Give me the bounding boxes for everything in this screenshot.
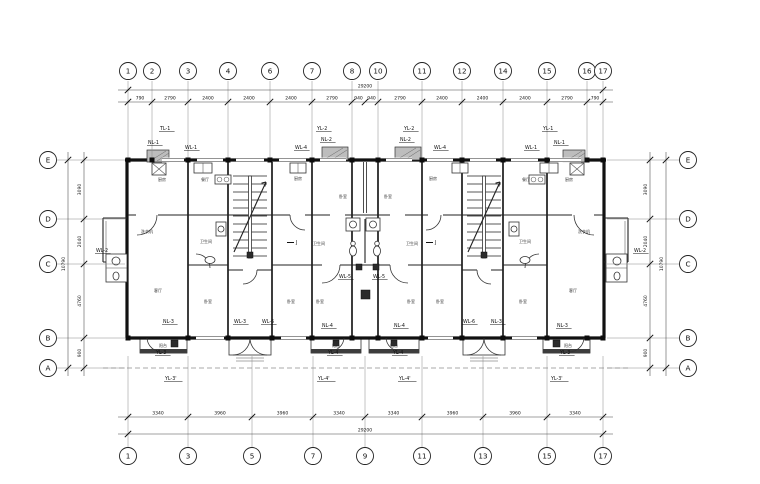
axis-bubble-label: 17: [598, 452, 607, 461]
dim-text: 10790: [61, 257, 67, 271]
riser-label-nl-4: NL-4: [394, 323, 405, 329]
column: [268, 158, 273, 163]
window: [236, 158, 264, 163]
porch-steps: [236, 358, 498, 361]
axis-bubble-label: 15: [542, 452, 551, 461]
column: [585, 158, 590, 163]
column: [501, 336, 506, 341]
axis-bubble-label: C: [685, 260, 690, 269]
axis-bubble-label: 3: [186, 67, 191, 76]
toilet-tank: [375, 241, 380, 246]
washbasin: [218, 226, 224, 232]
riser-label-yl-4: YL-4: [392, 350, 403, 356]
riser-label-wl-3: WL-3: [234, 319, 246, 325]
room-label: 阳台: [564, 342, 572, 348]
axis-bubble-label: 10: [373, 67, 383, 76]
dim-text: 3340: [569, 411, 581, 417]
axis-bubble-label: B: [686, 334, 691, 343]
column: [545, 158, 550, 163]
window: [386, 158, 412, 163]
section-mark: J: [295, 240, 297, 246]
room-label: 客厅: [154, 287, 162, 293]
toilet-tank: [351, 241, 356, 246]
axis-bubble-label: 2: [150, 67, 155, 76]
shaft-box: [361, 290, 370, 299]
window: [427, 158, 453, 163]
floor-plan-svg: 2920079027902400240024002790940940279024…: [0, 0, 760, 484]
room-label: 卧室: [339, 193, 347, 199]
toilet: [614, 272, 620, 280]
column: [150, 158, 155, 163]
dim-text: 3960: [509, 411, 521, 417]
dim-text: 900: [77, 349, 83, 358]
window: [512, 336, 537, 341]
axis-bubble-label: A: [46, 364, 51, 373]
riser-label-yl-4p: YL-4': [317, 376, 330, 382]
axis-bubble-label: 12: [457, 67, 466, 76]
axis-bubble-label: 4: [226, 67, 231, 76]
dim-text: 790: [136, 96, 145, 102]
toilet: [350, 246, 357, 256]
axis-bubble-label: 14: [498, 67, 508, 76]
axis-bubble-label: 8: [350, 67, 355, 76]
riser-label-wl-2: WL-2: [634, 248, 646, 254]
axis-bubble-label: 17: [598, 67, 607, 76]
washbasin: [511, 226, 517, 232]
dim-text: 4760: [643, 295, 649, 307]
dim-text: 2400: [243, 96, 255, 102]
window: [162, 158, 184, 163]
column: [376, 336, 381, 341]
dim-text: 2790: [561, 96, 573, 102]
dim-text: 3960: [214, 411, 226, 417]
stair-newel: [247, 252, 253, 258]
riser-label-yl-4: YL-4: [327, 350, 338, 356]
toilet: [205, 257, 215, 264]
column: [501, 158, 506, 163]
axis-bubble-label: 11: [417, 67, 426, 76]
riser-label-yl-2: YL-2: [316, 126, 327, 132]
riser-label-wl-1: WL-1: [185, 145, 197, 151]
dim-text: 940: [367, 96, 376, 102]
riser-label-yl-3: YL-3: [155, 350, 166, 356]
riser-label-yl-4p: YL-4': [398, 376, 411, 382]
column: [420, 158, 425, 163]
riser-label-nl-2: NL-2: [321, 137, 332, 143]
axis-bubble-label: 7: [310, 67, 315, 76]
window: [196, 336, 224, 341]
room-label: 厨房: [158, 176, 166, 182]
column: [310, 336, 315, 341]
riser-wl5: [356, 264, 362, 270]
axis-bubble-label: 3: [186, 452, 191, 461]
interior-vertical-walls: [188, 162, 547, 336]
riser-label-wl-2: WL-2: [96, 248, 108, 254]
walls: [103, 160, 628, 338]
column: [376, 158, 381, 163]
axis-bubble-label: E: [686, 156, 691, 165]
axis-bubble-label: 6: [268, 67, 273, 76]
room-label: 厨房: [294, 175, 302, 181]
room-label: 卧室: [519, 298, 527, 304]
window: [550, 158, 581, 163]
column: [186, 336, 191, 341]
window: [279, 158, 306, 163]
room-label: 阳台: [390, 342, 398, 348]
axis-bubble-label: D: [45, 215, 51, 224]
room-label: 厨房: [429, 175, 437, 181]
riser-label-wl-5: WL-5: [373, 274, 385, 280]
section-mark: J: [434, 240, 436, 246]
dim-text: 900: [643, 349, 649, 358]
riser-label-nl-2: NL-2: [400, 137, 411, 143]
window: [470, 158, 496, 163]
riser-label-yl-3p: YL-3': [164, 376, 177, 382]
riser-label-wl-1: WL-1: [525, 145, 537, 151]
window: [197, 158, 223, 163]
column: [350, 158, 355, 163]
axis-bubble-label: A: [686, 364, 691, 373]
riser-label-wl-6: WL-6: [463, 319, 475, 325]
dim-text: 2790: [326, 96, 338, 102]
corridor-divider-wall: [364, 162, 367, 213]
toilet: [520, 257, 530, 264]
column: [270, 336, 275, 341]
dim-text: 3340: [152, 411, 164, 417]
room-label: 阳台: [159, 342, 167, 348]
dim-text: 2040: [77, 236, 83, 248]
room-label: 卧室: [287, 298, 295, 304]
stove: [215, 175, 231, 184]
column: [186, 158, 191, 163]
window: [281, 336, 306, 341]
column: [226, 336, 231, 341]
riser-label-nl-4: NL-4: [322, 323, 333, 329]
window: [511, 158, 538, 163]
column: [226, 158, 231, 163]
dim-text: 29200: [358, 428, 372, 434]
room-label: 卧室: [407, 298, 415, 304]
column: [601, 336, 606, 341]
room-label: 卧室: [204, 298, 212, 304]
room-label: 洗衣机: [141, 228, 153, 234]
dim-text: 29200: [358, 84, 372, 90]
room-label: 卫生间: [519, 238, 531, 244]
riser-label-wl-6: WL-6: [262, 319, 274, 325]
window: [428, 336, 453, 341]
dim-text: 940: [354, 96, 363, 102]
dim-text: 2400: [436, 96, 448, 102]
axis-bubble-label: C: [45, 260, 50, 269]
riser-label-yl-3: YL-3: [559, 350, 570, 356]
axis-bubble-label: 15: [542, 67, 551, 76]
dim-text: 2400: [285, 96, 297, 102]
riser-label-nl-3: NL-3: [163, 319, 174, 325]
dim-text: 2040: [643, 236, 649, 248]
floor-plan-page: 2920079027902400240024002790940940279024…: [0, 0, 760, 484]
stove: [529, 175, 545, 184]
axis-bubble-label: 16: [582, 67, 592, 76]
riser-label-nl-3: NL-3: [491, 319, 502, 325]
washbasin: [370, 221, 377, 228]
axis-bubble-label: B: [46, 334, 51, 343]
room-label: 卫生间: [406, 240, 418, 246]
dim-text: 3960: [447, 411, 459, 417]
column: [350, 336, 355, 341]
axis-bubble-label: 1: [126, 452, 131, 461]
axis-bubble-label: E: [46, 156, 51, 165]
column: [601, 158, 606, 163]
dim-text: 3340: [388, 411, 400, 417]
column: [126, 336, 131, 341]
riser-label-wl-4: WL-4: [434, 145, 446, 151]
riser-label-yl-3p: YL-3': [550, 376, 563, 382]
dim-text: 3960: [277, 411, 289, 417]
stair-newel: [481, 252, 487, 258]
dim-text: 2400: [477, 96, 489, 102]
column: [310, 158, 315, 163]
window: [320, 158, 346, 163]
dim-text: 2400: [202, 96, 214, 102]
dim-text: 4760: [77, 295, 83, 307]
riser-label-nl-3: NL-3: [557, 323, 568, 329]
axis-bubble-label: 5: [250, 452, 255, 461]
room-label: 卧室: [384, 193, 392, 199]
room-label: 餐厅: [201, 176, 209, 182]
axis-bubble-label: D: [685, 215, 691, 224]
room-label: 客厅: [569, 287, 577, 293]
room-label: 卫生间: [313, 240, 325, 246]
dim-text: 2790: [394, 96, 406, 102]
column: [585, 336, 590, 341]
toilet: [374, 246, 381, 256]
riser-label-tl-1: TL-1: [159, 126, 170, 132]
column: [126, 158, 131, 163]
room-label: 阳台: [332, 342, 340, 348]
column: [460, 158, 465, 163]
column: [420, 336, 425, 341]
riser-wl5: [373, 264, 379, 270]
dim-text: 3090: [77, 184, 83, 196]
riser-label-wl-5: WL-5: [339, 274, 351, 280]
axis-bubble-label: 11: [417, 452, 426, 461]
dim-text: 3090: [643, 184, 649, 196]
dim-text: 10790: [659, 257, 665, 271]
axis-bubble-label: 1: [126, 67, 131, 76]
dim-text: 2400: [519, 96, 531, 102]
dim-text: 790: [591, 96, 600, 102]
axis-bubble-label: 13: [478, 452, 487, 461]
washbasin: [350, 221, 357, 228]
riser-label-wl-4: WL-4: [295, 145, 307, 151]
dim-text: 2790: [164, 96, 176, 102]
room-label: 卧室: [436, 298, 444, 304]
column: [460, 336, 465, 341]
room-label: 卧室: [316, 298, 324, 304]
room-label: 卫生间: [200, 238, 212, 244]
riser-label-yl-2: YL-2: [403, 126, 414, 132]
riser-label-nl-1: NL-1: [554, 140, 565, 146]
column: [545, 336, 550, 341]
axis-bubble-label: 9: [363, 452, 368, 461]
room-label: 洗衣机: [578, 228, 590, 234]
toilet: [113, 272, 119, 280]
room-label: 厨房: [565, 176, 573, 182]
riser-label-yl-1: YL-1: [542, 126, 553, 132]
downspout-box: [171, 340, 178, 347]
axis-bubble-label: 7: [311, 452, 316, 461]
downspout-box: [553, 340, 560, 347]
room-label: 餐厅: [522, 176, 530, 182]
riser-label-nl-1: NL-1: [148, 140, 159, 146]
dim-text: 3340: [333, 411, 345, 417]
